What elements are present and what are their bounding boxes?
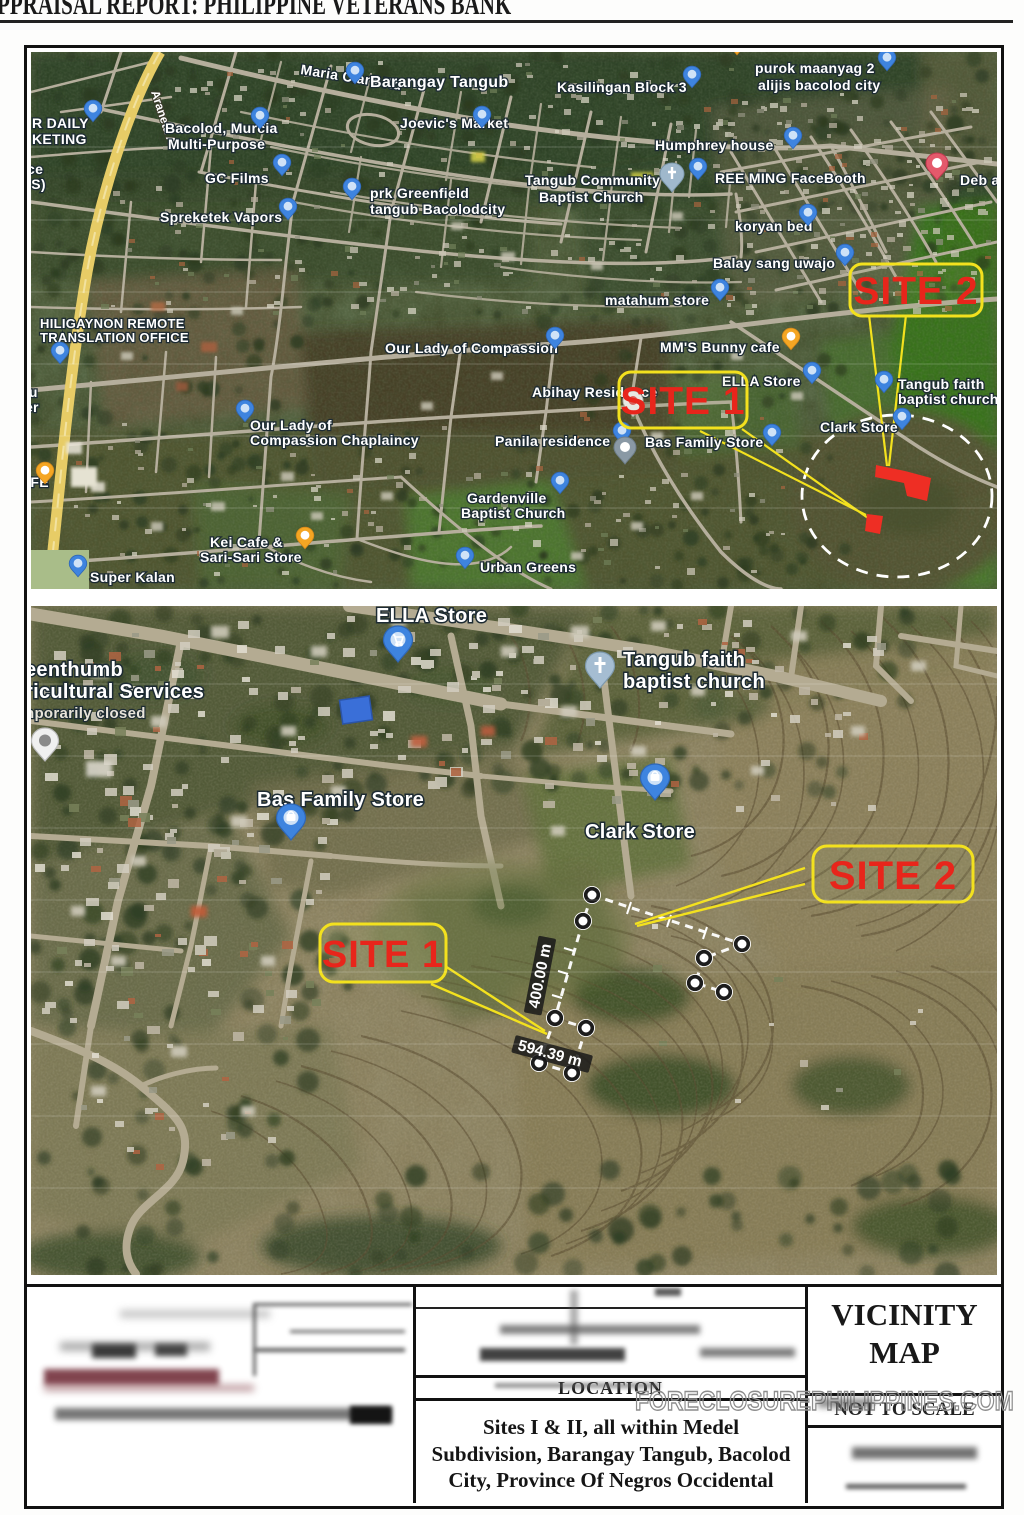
svg-text:alijis bacolod city: alijis bacolod city [758,77,880,93]
svg-text:Gardenville: Gardenville [467,490,547,506]
svg-text:matahum store: matahum store [605,292,709,308]
svg-text:Clark Store: Clark Store [820,419,898,435]
svg-text:R DAILY: R DAILY [32,115,89,131]
svg-text:MM'S Bunny cafe: MM'S Bunny cafe [660,339,780,355]
svg-text:ELLA Store: ELLA Store [376,606,487,627]
svg-text:Clark Store: Clark Store [585,821,695,843]
svg-text:SITE 2: SITE 2 [829,854,957,898]
svg-text:Baptist Church: Baptist Church [539,189,644,205]
svg-text:Balay sang uwajo: Balay sang uwajo [713,255,835,271]
svg-text:Baptist Church: Baptist Church [461,505,566,521]
svg-text:koryan bed: koryan bed [735,218,813,234]
svg-text:Urban Greens: Urban Greens [480,559,576,575]
svg-text:IS): IS) [31,176,46,192]
svg-text:baptist church: baptist church [898,391,997,407]
svg-text:ou: ou [31,384,38,400]
svg-text:GC Films: GC Films [205,170,269,186]
svg-text:SITE 2: SITE 2 [853,270,978,313]
svg-text:nporarily closed: nporarily closed [31,705,146,722]
svg-text:Humphrey house: Humphrey house [655,137,774,153]
svg-text:Kei Cafe &: Kei Cafe & [210,534,283,550]
svg-text:ce: ce [31,161,43,177]
svg-text:baptist church: baptist church [623,671,765,693]
svg-text:ter: ter [31,399,39,415]
svg-text:KETING: KETING [32,131,87,147]
svg-text:Tangub faith: Tangub faith [623,649,745,671]
svg-text:HILIGAYNON REMOTE: HILIGAYNON REMOTE [40,316,185,331]
svg-text:Spreketek Vapors: Spreketek Vapors [160,209,282,225]
svg-text:Joevic's Market: Joevic's Market [400,115,508,131]
svg-text:Our Lady of Compassion: Our Lady of Compassion [385,340,558,356]
svg-text:purok maanyag 2: purok maanyag 2 [755,60,875,76]
svg-text:Tangub faith: Tangub faith [898,376,985,392]
svg-text:SITE 1: SITE 1 [620,380,745,423]
svg-text:prk Greenfield: prk Greenfield [370,185,469,201]
svg-text:REE MING FaceBooth: REE MING FaceBooth [715,170,866,186]
svg-text:Super Kalan: Super Kalan [90,569,175,585]
svg-text:Sari-Sari Store: Sari-Sari Store [200,549,302,565]
svg-text:Compassion Chaplaincy: Compassion Chaplaincy [250,432,419,448]
svg-text:Kasilingan Block 3: Kasilingan Block 3 [557,79,687,95]
svg-text:Our Lady of: Our Lady of [250,417,332,433]
svg-text:eenthumb: eenthumb [31,659,123,681]
svg-text:Barangay Tangub: Barangay Tangub [370,74,508,91]
svg-text:Panila residence: Panila residence [495,433,610,449]
svg-text:Tangub Community: Tangub Community [525,172,660,188]
svg-text:Multi-Purpose: Multi-Purpose [168,136,265,152]
svg-text:Bas Family Store: Bas Family Store [645,434,763,450]
svg-text:tangub Bacolodcity: tangub Bacolodcity [370,201,505,217]
svg-text:Deb an: Deb an [960,172,997,188]
svg-text:SITE 1: SITE 1 [322,934,444,976]
svg-text:ricultural Services: ricultural Services [31,681,204,703]
